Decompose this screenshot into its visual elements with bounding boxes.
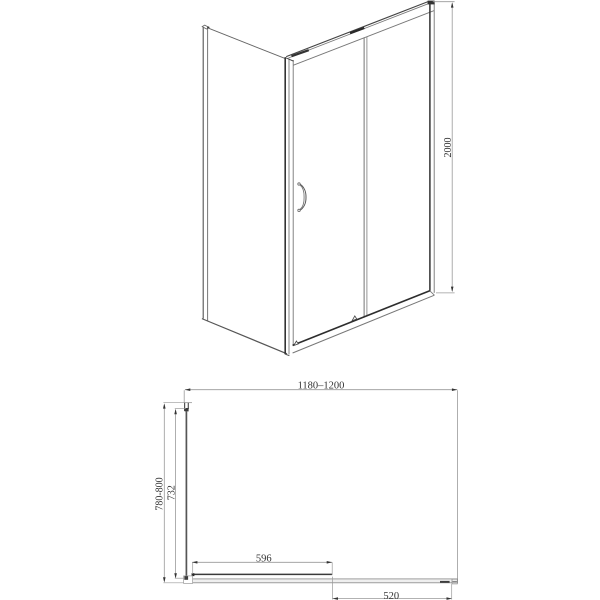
svg-text:1180–1200: 1180–1200: [298, 380, 345, 391]
svg-text:732: 732: [166, 485, 177, 500]
svg-text:2000: 2000: [443, 138, 454, 158]
svg-text:520: 520: [383, 591, 399, 600]
svg-text:596: 596: [256, 553, 272, 564]
svg-text:780-800: 780-800: [154, 477, 165, 510]
